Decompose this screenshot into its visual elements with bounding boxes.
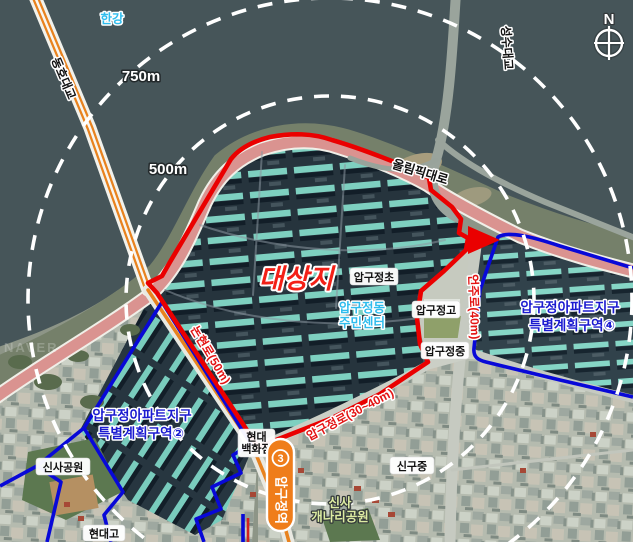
district2-line2: 특별계획구역② — [98, 425, 184, 441]
naver-watermark: NAVER — [4, 340, 59, 355]
compass-n-label: N — [604, 11, 615, 28]
place-sinsa-park: 신사공원 — [36, 458, 90, 475]
apgujeong-high-label: 압구정고 — [416, 303, 456, 317]
apgujeong-station-label: 압구정역 — [274, 476, 289, 524]
community-center-line1: 압구정동 — [339, 300, 386, 315]
district2-line1: 압구정아파트지구 — [92, 407, 191, 423]
site-label: 대상지 — [259, 264, 337, 294]
ring-500m-label: 500m — [149, 161, 187, 178]
gaenari-park-line1: 신사 — [328, 495, 352, 510]
hyundai-high-label: 현대고 — [89, 527, 119, 541]
place-apgujeong-high: 압구정고 — [412, 301, 460, 318]
school-field — [424, 316, 462, 338]
community-center-line2: 주민센터 — [339, 315, 385, 330]
apgujeong-elementary-label: 압구정초 — [354, 270, 394, 284]
han-river-label: 한강 — [100, 11, 124, 26]
district4-line1: 압구정아파트지구 — [520, 299, 619, 315]
place-apgujeong-elementary: 압구정초 — [350, 268, 398, 285]
line3-number: 3 — [277, 453, 283, 465]
singu-middle-label: 신구중 — [397, 459, 427, 473]
hyundai-dept-label-line1: 현대 — [246, 430, 266, 444]
map-canvas: NAVER 한강 750m 500m 동호대교 성수대교 올림픽대로 논현로(5… — [0, 0, 633, 542]
apgujeong-station-marker: 3 압구정역 — [267, 439, 294, 531]
gaenari-park-line2: 개나리공원 — [311, 509, 369, 524]
eonju-ro-label: 언주로(40m) — [466, 274, 483, 340]
place-hyundai-high: 현대고 — [83, 525, 125, 541]
place-apgujeong-middle: 압구정중 — [421, 342, 469, 359]
sinsa-park-label: 신사공원 — [43, 460, 83, 474]
place-singu-middle: 신구중 — [390, 457, 434, 474]
district4-line2: 특별계획구역④ — [529, 317, 615, 333]
apgujeong-middle-label: 압구정중 — [425, 344, 465, 358]
ring-750m-label: 750m — [122, 68, 160, 85]
